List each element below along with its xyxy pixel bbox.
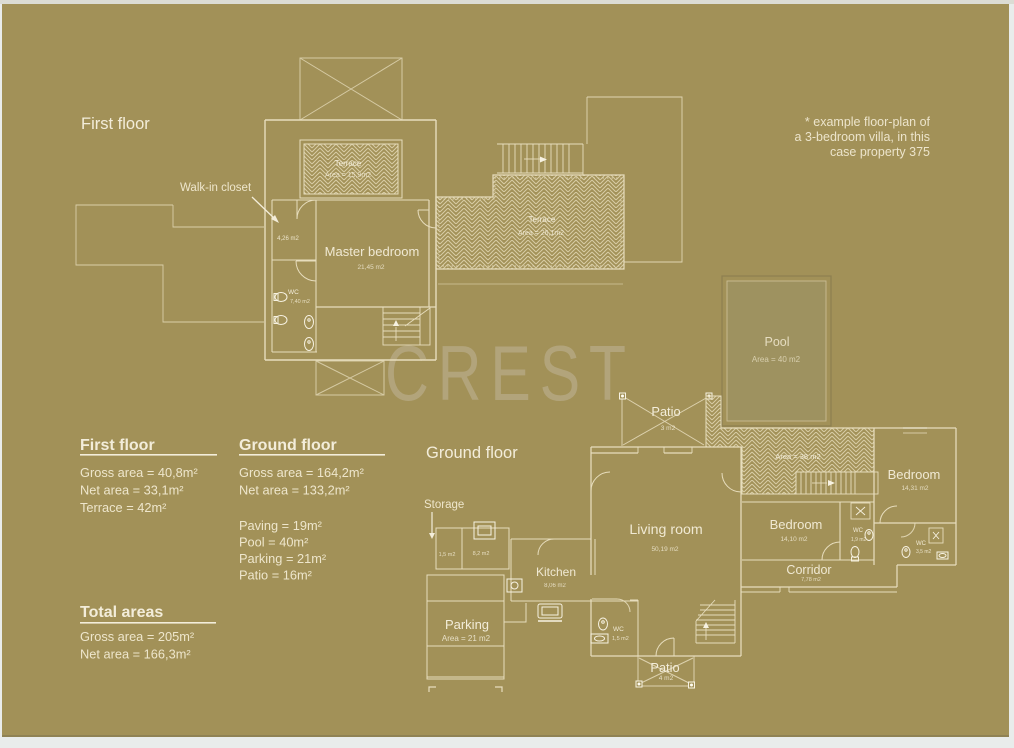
- svg-text:4 m2: 4 m2: [659, 675, 674, 682]
- svg-text:1,9 m2: 1,9 m2: [851, 537, 867, 543]
- svg-text:Ground floor: Ground floor: [426, 444, 518, 462]
- svg-text:Gross area = 164,2m²: Gross area = 164,2m²: [239, 465, 365, 480]
- svg-text:Parking = 21m²: Parking = 21m²: [239, 551, 327, 566]
- svg-text:Pool: Pool: [764, 335, 789, 349]
- svg-text:a 3-bedroom villa, in this: a 3-bedroom villa, in this: [795, 130, 930, 144]
- svg-text:WC: WC: [613, 626, 624, 633]
- svg-text:Net area = 166,3m²: Net area = 166,3m²: [80, 647, 191, 662]
- svg-text:Living room: Living room: [629, 522, 702, 538]
- svg-text:Terrace: Terrace: [529, 215, 556, 224]
- svg-text:21,45 m2: 21,45 m2: [357, 264, 384, 271]
- svg-text:3,5 m2: 3,5 m2: [916, 549, 932, 555]
- svg-text:Terrace: Terrace: [335, 159, 362, 168]
- svg-text:WC: WC: [853, 528, 864, 534]
- svg-text:3 m2: 3 m2: [661, 425, 676, 432]
- svg-text:Walk-in closet: Walk-in closet: [180, 182, 252, 194]
- svg-text:8,2 m2: 8,2 m2: [473, 551, 490, 557]
- svg-text:Net area = 33,1m²: Net area = 33,1m²: [80, 483, 184, 498]
- svg-text:Area = 15,9m2: Area = 15,9m2: [325, 172, 371, 179]
- svg-text:WC: WC: [916, 541, 927, 547]
- svg-text:First floor: First floor: [80, 437, 155, 454]
- svg-text:* example floor-plan of: * example floor-plan of: [805, 115, 931, 129]
- svg-text:Terrace = 42m²: Terrace = 42m²: [80, 500, 167, 515]
- svg-text:Master bedroom: Master bedroom: [325, 244, 420, 259]
- svg-text:Bedroom: Bedroom: [770, 517, 823, 532]
- svg-text:case property 375: case property 375: [830, 145, 930, 159]
- svg-text:Pool = 40m²: Pool = 40m²: [239, 535, 309, 550]
- svg-text:Net area = 133,2m²: Net area = 133,2m²: [239, 483, 350, 498]
- svg-text:Area = 21 m2: Area = 21 m2: [442, 634, 491, 643]
- svg-text:Storage: Storage: [424, 499, 464, 511]
- svg-text:Patio: Patio: [650, 660, 679, 675]
- svg-text:Patio = 16m²: Patio = 16m²: [239, 568, 313, 583]
- svg-text:8,06 m2: 8,06 m2: [544, 583, 566, 589]
- svg-text:Area = 26,1m2: Area = 26,1m2: [518, 230, 564, 237]
- svg-text:Bedroom: Bedroom: [888, 467, 941, 482]
- svg-text:Gross area = 205m²: Gross area = 205m²: [80, 629, 195, 644]
- svg-text:Area = 38 m2: Area = 38 m2: [775, 452, 820, 461]
- svg-text:Total areas: Total areas: [80, 604, 163, 621]
- svg-text:4,26 m2: 4,26 m2: [277, 236, 299, 242]
- svg-text:WC: WC: [288, 289, 299, 296]
- svg-text:Gross area = 40,8m²: Gross area = 40,8m²: [80, 465, 198, 480]
- svg-text:14,10 m2: 14,10 m2: [780, 536, 807, 543]
- svg-text:50,19 m2: 50,19 m2: [651, 546, 678, 553]
- svg-text:First floor: First floor: [81, 115, 150, 133]
- svg-text:1,5 m2: 1,5 m2: [612, 636, 629, 642]
- svg-text:1,5 m2: 1,5 m2: [439, 552, 456, 558]
- svg-text:Patio: Patio: [651, 404, 680, 419]
- svg-text:14,31 m2: 14,31 m2: [901, 485, 928, 492]
- svg-text:Paving = 19m²: Paving = 19m²: [239, 518, 323, 533]
- svg-text:Area = 40 m2: Area = 40 m2: [752, 355, 801, 364]
- svg-text:Kitchen: Kitchen: [536, 565, 576, 579]
- svg-text:Parking: Parking: [445, 617, 489, 632]
- svg-text:CREST: CREST: [385, 330, 626, 417]
- svg-text:Ground floor: Ground floor: [239, 437, 337, 454]
- svg-text:7,78 m2: 7,78 m2: [801, 577, 821, 583]
- svg-text:Corridor: Corridor: [786, 563, 831, 577]
- svg-text:7,40 m2: 7,40 m2: [290, 299, 310, 305]
